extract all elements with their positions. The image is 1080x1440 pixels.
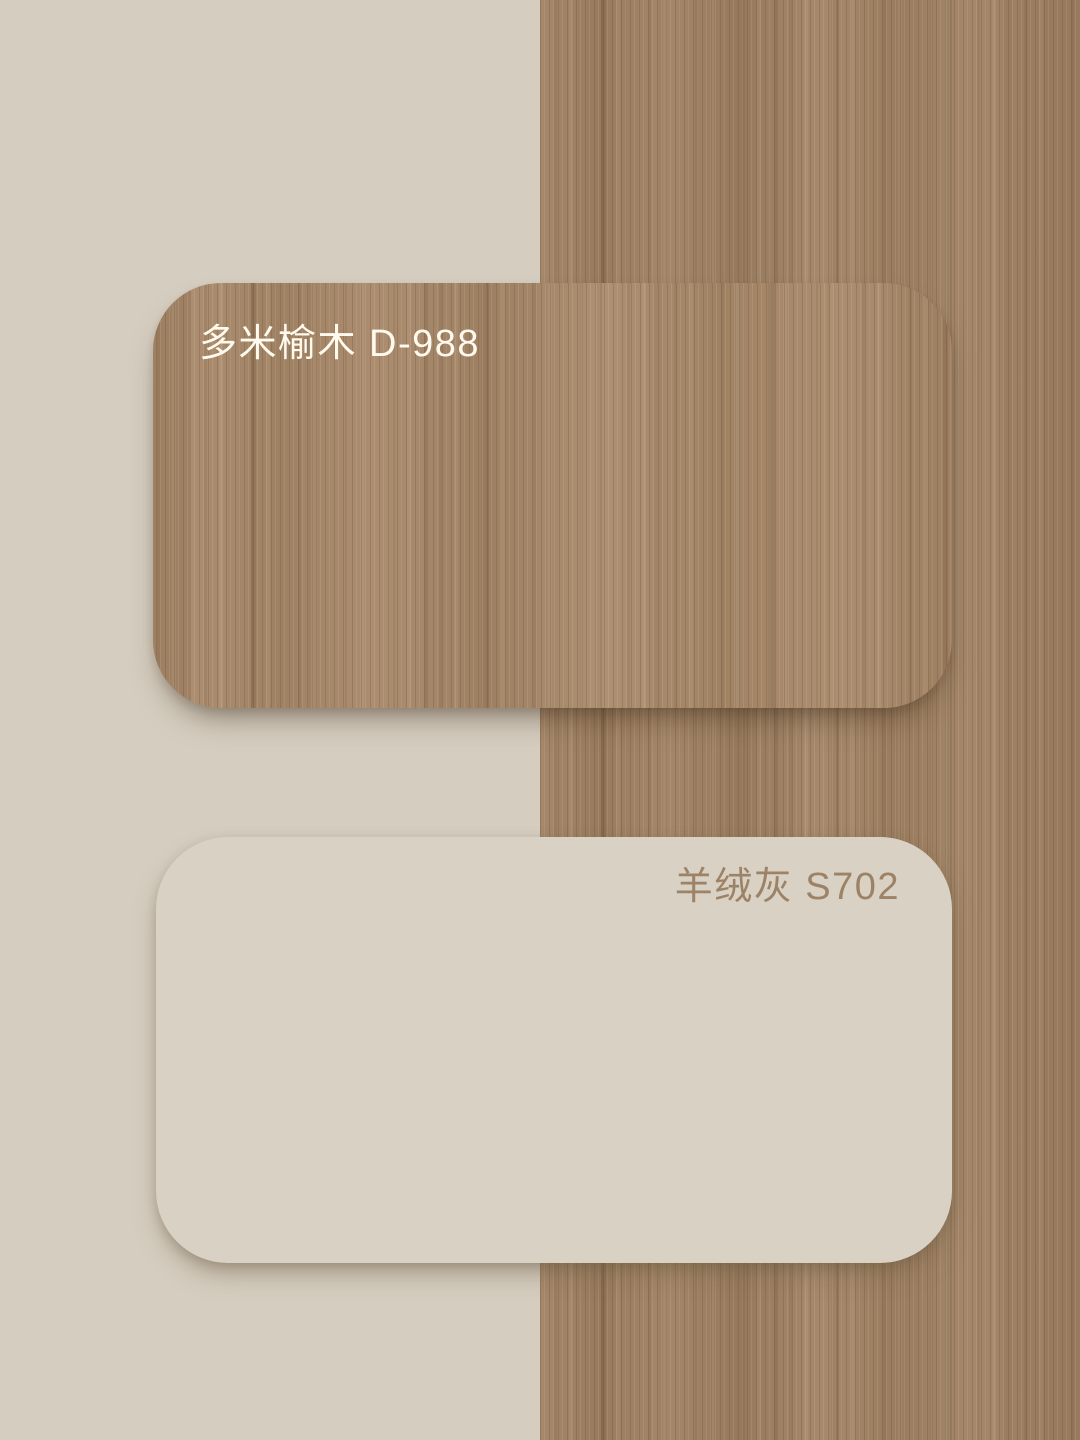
wood-swatch-card: 多米榆木 D-988 (153, 283, 952, 708)
wood-swatch-label: 多米榆木 D-988 (199, 325, 480, 363)
paint-swatch-card: 羊绒灰 S702 (156, 837, 952, 1263)
paint-swatch-label: 羊绒灰 S702 (675, 868, 900, 906)
material-board: 多米榆木 D-988 羊绒灰 S702 (0, 0, 1080, 1440)
